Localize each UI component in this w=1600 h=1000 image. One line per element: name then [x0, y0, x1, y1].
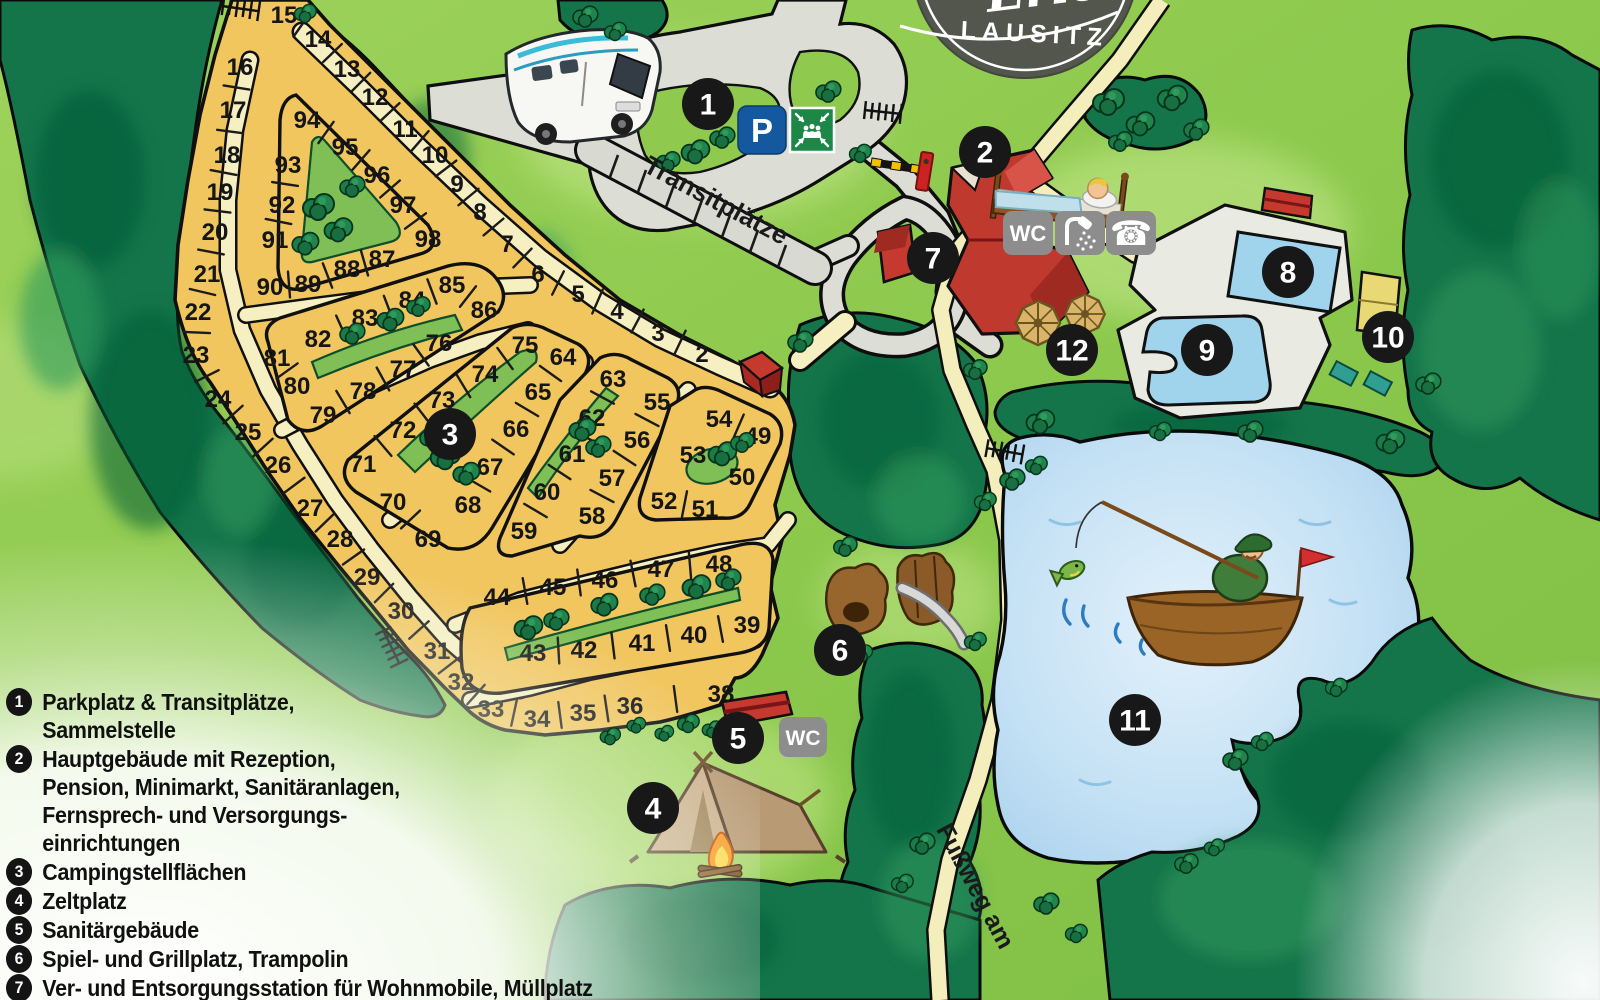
- plot-number-5: 5: [571, 281, 584, 308]
- legend-badge: 4: [6, 887, 32, 915]
- plot-number-82: 82: [305, 326, 332, 353]
- plot-number-3: 3: [651, 320, 664, 347]
- legend-item-4: 4Zeltplatz: [6, 887, 620, 915]
- plot-number-6: 6: [531, 261, 544, 288]
- plot-number-17: 17: [220, 97, 247, 124]
- marker-11: 11: [1109, 694, 1161, 746]
- legend-badge: 3: [6, 858, 32, 886]
- parking-sign-letter: P: [751, 112, 773, 149]
- legend-item-5: 5Sanitärgebäude: [6, 916, 620, 944]
- plot-number-90: 90: [257, 274, 284, 301]
- plot-number-86: 86: [471, 297, 498, 324]
- marker-number: 5: [730, 723, 747, 756]
- plot-number-63: 63: [600, 366, 627, 393]
- plot-number-60: 60: [534, 479, 561, 506]
- plot-number-65: 65: [525, 379, 552, 406]
- plot-number-98: 98: [415, 226, 442, 253]
- legend-text: Parkplatz & Transitplätze,Sammelstelle: [42, 688, 294, 744]
- marker-number: 6: [832, 635, 849, 668]
- marker-number: 12: [1055, 335, 1088, 368]
- marker-9: 9: [1181, 324, 1233, 376]
- plot-number-81: 81: [264, 345, 291, 372]
- plot-number-79: 79: [310, 402, 337, 429]
- plot-number-92: 92: [269, 192, 296, 219]
- shower-icon: [1055, 211, 1105, 255]
- legend-item-2: 2Hauptgebäude mit Rezeption,Pension, Min…: [6, 745, 620, 857]
- marker-number: 11: [1119, 705, 1151, 738]
- plot-number-54: 54: [706, 406, 733, 433]
- plot-number-23: 23: [183, 342, 210, 369]
- plot-number-71: 71: [350, 451, 377, 478]
- plot-number-87: 87: [369, 246, 396, 273]
- wc-sanitary-sign: WC: [779, 717, 827, 757]
- plot-number-95: 95: [332, 134, 359, 161]
- marker-number: 9: [1199, 335, 1216, 368]
- plot-number-9: 9: [450, 171, 463, 198]
- legend-badge: 1: [6, 688, 32, 716]
- marker-number: 10: [1371, 322, 1404, 355]
- plot-number-96: 96: [364, 162, 391, 189]
- legend-badge: 2: [6, 745, 32, 773]
- plot-number-2: 2: [695, 341, 708, 368]
- plot-number-57: 57: [599, 465, 626, 492]
- parking-sign: P: [738, 106, 786, 154]
- plot-number-89: 89: [295, 271, 322, 298]
- marker-1: 1: [682, 78, 734, 130]
- plot-number-61: 61: [559, 441, 586, 468]
- legend-text: Sanitärgebäude: [42, 916, 199, 944]
- plot-number-85: 85: [439, 272, 466, 299]
- plot-number-27: 27: [297, 495, 324, 522]
- legend-text: Campingstellflächen: [42, 858, 246, 886]
- plot-number-18: 18: [214, 142, 241, 169]
- wc-sign-label: WC: [1010, 221, 1047, 246]
- campground-map: 1514131211109876543216171819202122232425…: [0, 0, 1600, 1000]
- plot-number-70: 70: [380, 489, 407, 516]
- plot-number-12: 12: [362, 84, 389, 111]
- legend-item-3: 3Campingstellflächen: [6, 858, 620, 886]
- plot-number-16: 16: [227, 54, 254, 81]
- plot-number-21: 21: [194, 261, 221, 288]
- legend-text: Spiel- und Grillplatz, Trampolin: [42, 945, 348, 973]
- svg-text:☎: ☎: [1110, 215, 1152, 253]
- wc-sign: WC: [1003, 211, 1053, 255]
- plot-divider: [184, 332, 210, 333]
- wc-sanitary-label: WC: [786, 727, 821, 750]
- plot-number-19: 19: [207, 179, 234, 206]
- legend-text: Zeltplatz: [42, 887, 126, 915]
- marker-2: 2: [959, 126, 1011, 178]
- legend-item-7: 7Ver- und Entsorgungsstation für Wohnmob…: [6, 974, 620, 1000]
- plot-number-77: 77: [390, 356, 417, 383]
- plot-number-88: 88: [334, 256, 361, 283]
- plot-number-67: 67: [477, 454, 504, 481]
- plot-number-52: 52: [651, 488, 678, 515]
- legend-text: Ver- und Entsorgungsstation für Wohnmobi…: [42, 974, 592, 1000]
- marker-number: 1: [700, 89, 717, 122]
- plot-number-78: 78: [350, 378, 377, 405]
- plot-number-91: 91: [262, 227, 289, 254]
- plot-number-56: 56: [624, 427, 651, 454]
- plot-number-4: 4: [610, 298, 624, 325]
- marker-3: 3: [424, 408, 476, 460]
- plot-number-72: 72: [390, 417, 417, 444]
- plot-number-25: 25: [235, 419, 262, 446]
- marker-4: 4: [627, 782, 679, 834]
- plot-number-20: 20: [202, 219, 229, 246]
- legend-item-6: 6Spiel- und Grillplatz, Trampolin: [6, 945, 620, 973]
- plot-number-55: 55: [644, 389, 671, 416]
- plot-number-64: 64: [550, 344, 577, 371]
- plot-number-76: 76: [426, 330, 453, 357]
- plot-number-93: 93: [275, 152, 302, 179]
- assembly-point-icon: [790, 108, 834, 152]
- phone-icon: ☎: [1106, 211, 1156, 255]
- legend-item-1: 1Parkplatz & Transitplätze,Sammelstelle: [6, 688, 620, 744]
- legend-text: Hauptgebäude mit Rezeption,Pension, Mini…: [42, 745, 400, 857]
- marker-7: 7: [907, 232, 959, 284]
- plot-number-14: 14: [305, 26, 332, 53]
- plot-number-66: 66: [503, 416, 530, 443]
- plot-number-11: 11: [392, 116, 417, 143]
- plot-number-26: 26: [265, 452, 292, 479]
- marker-number: 3: [442, 419, 459, 452]
- legend-badge: 6: [6, 945, 32, 973]
- plot-number-80: 80: [284, 373, 311, 400]
- plot-number-10: 10: [422, 142, 449, 169]
- plot-number-94: 94: [294, 107, 321, 134]
- plot-number-8: 8: [473, 199, 486, 226]
- legend-badge: 5: [6, 916, 32, 944]
- plot-number-75: 75: [512, 332, 539, 359]
- marker-5: 5: [712, 712, 764, 764]
- rv-illustration: [506, 30, 660, 145]
- plot-number-68: 68: [455, 492, 482, 519]
- plot-number-24: 24: [205, 386, 232, 413]
- marker-10: 10: [1362, 311, 1414, 363]
- marker-8: 8: [1262, 246, 1314, 298]
- legend: 1Parkplatz & Transitplätze,Sammelstelle2…: [6, 688, 620, 1000]
- plot-number-51: 51: [692, 496, 719, 523]
- marker-number: 2: [977, 137, 994, 170]
- marker-6: 6: [814, 624, 866, 676]
- plot-number-13: 13: [334, 56, 361, 83]
- plot-number-53: 53: [680, 442, 707, 469]
- corner-fade: [1260, 620, 1600, 1000]
- marker-12: 12: [1046, 324, 1098, 376]
- legend-badge: 7: [6, 974, 32, 1000]
- plot-number-74: 74: [472, 361, 499, 388]
- plot-number-7: 7: [500, 231, 513, 258]
- marker-number: 8: [1280, 257, 1297, 290]
- marker-number: 4: [645, 793, 662, 826]
- plot-number-97: 97: [390, 192, 417, 219]
- marker-number: 7: [925, 243, 942, 276]
- plot-number-50: 50: [729, 464, 756, 491]
- plot-number-15: 15: [271, 2, 298, 29]
- plot-number-22: 22: [185, 299, 212, 326]
